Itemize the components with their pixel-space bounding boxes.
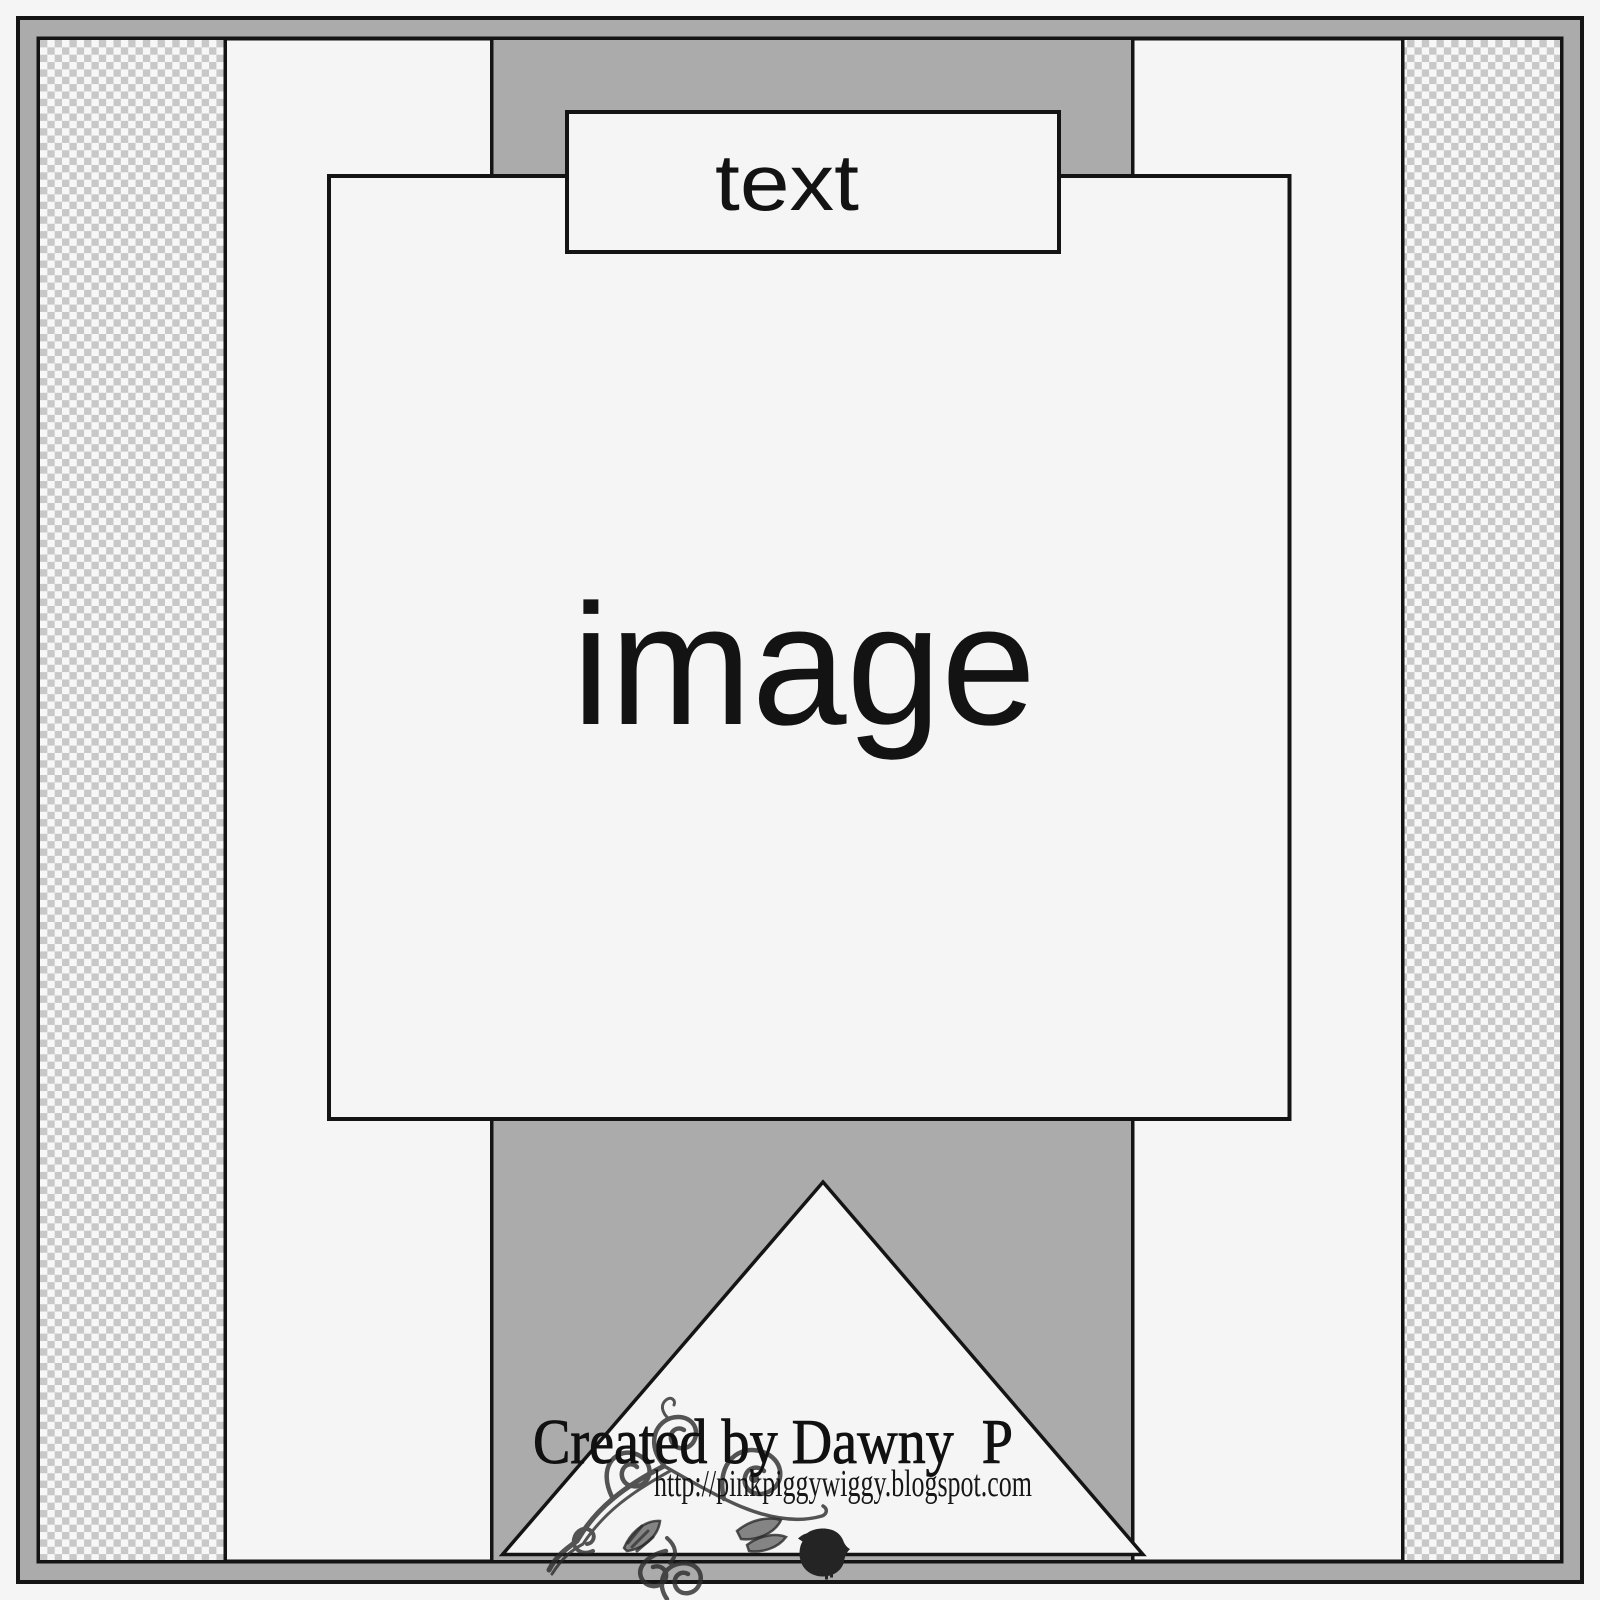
svg-text:http://pinkpiggywiggy.blogspot: http://pinkpiggywiggy.blogspot.com xyxy=(654,1463,1032,1505)
svg-text:text: text xyxy=(715,138,859,227)
svg-text:image: image xyxy=(572,569,1036,761)
